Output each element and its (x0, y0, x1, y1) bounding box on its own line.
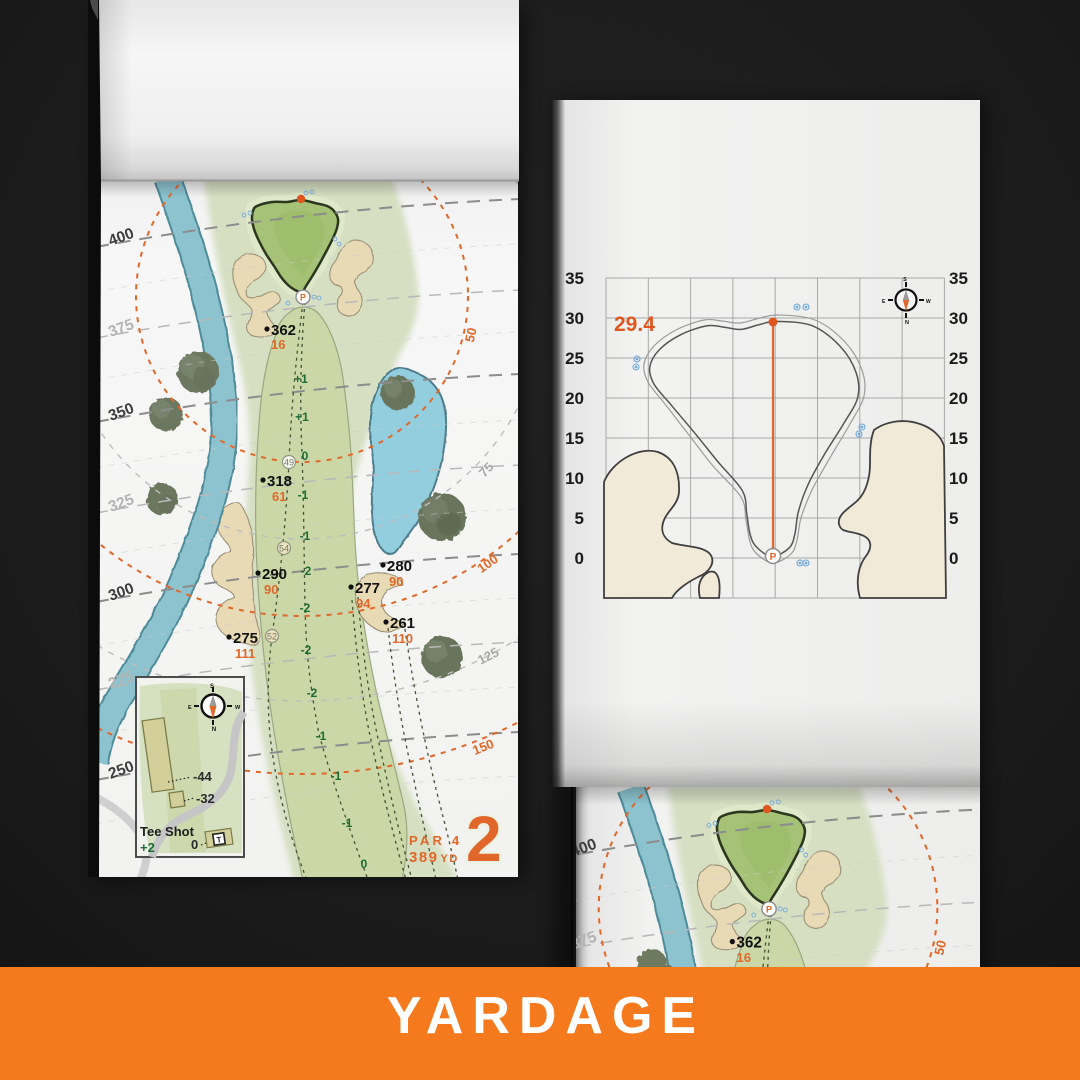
svg-text:YARDAGE: YARDAGE (387, 987, 705, 1045)
